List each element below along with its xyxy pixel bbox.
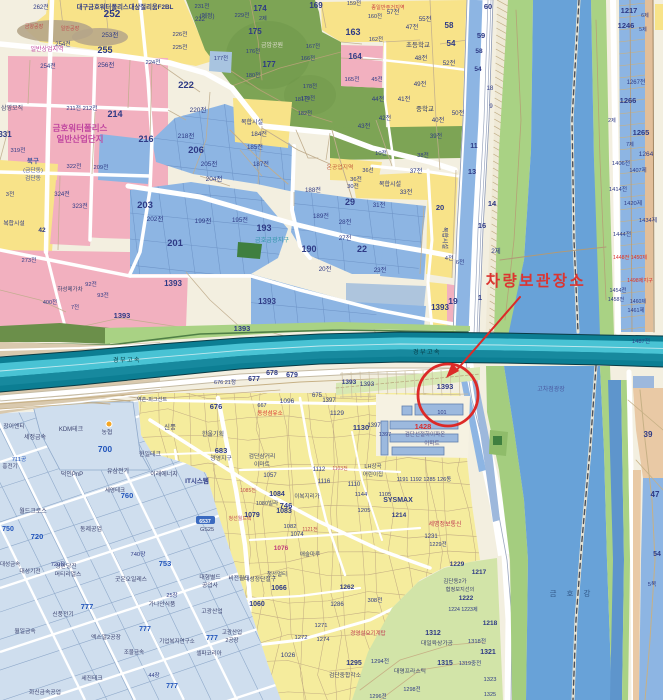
- svg-text:대일육상가공: 대일육상가공: [421, 639, 454, 647]
- svg-text:193: 193: [256, 223, 271, 233]
- svg-text:동성섬유소: 동성섬유소: [257, 409, 282, 417]
- svg-text:1315: 1315: [437, 660, 453, 667]
- svg-text:1461제: 1461제: [628, 306, 645, 314]
- svg-text:54: 54: [474, 66, 482, 73]
- svg-text:27전: 27전: [339, 234, 352, 242]
- svg-text:검단삼거리: 검단삼거리: [249, 452, 276, 460]
- svg-text:189전: 189전: [313, 212, 329, 220]
- svg-text:경부고속: 경부고속: [113, 356, 141, 364]
- svg-text:1060: 1060: [249, 601, 265, 608]
- svg-text:683: 683: [215, 446, 228, 455]
- svg-text:일반상업지역: 일반상업지역: [30, 45, 63, 53]
- svg-text:45전: 45전: [371, 75, 382, 83]
- svg-text:214: 214: [107, 109, 122, 119]
- svg-text:금암공원: 금암공원: [261, 41, 283, 49]
- svg-text:322전: 322전: [66, 162, 81, 170]
- svg-text:220전: 220전: [190, 105, 207, 114]
- svg-text:777: 777: [206, 635, 218, 642]
- svg-text:177: 177: [262, 60, 276, 69]
- svg-text:1498제지구: 1498제지구: [627, 276, 653, 284]
- svg-text:GS25: GS25: [200, 527, 214, 533]
- svg-text:기업복지연구소: 기업복지연구소: [159, 637, 194, 645]
- svg-text:1076: 1076: [274, 545, 289, 552]
- svg-text:1296전: 1296전: [369, 692, 386, 700]
- svg-text:아파트: 아파트: [424, 439, 439, 447]
- svg-text:1274: 1274: [317, 637, 331, 643]
- svg-text:광영지구: 광영지구: [210, 454, 232, 462]
- svg-text:164: 164: [348, 52, 362, 61]
- svg-text:1407제: 1407제: [629, 166, 646, 174]
- svg-text:28전: 28전: [339, 218, 352, 226]
- svg-text:42전: 42전: [379, 114, 391, 122]
- svg-text:206: 206: [188, 145, 204, 156]
- svg-text:4전: 4전: [445, 254, 454, 262]
- svg-text:48전: 48전: [415, 54, 428, 62]
- svg-text:일반산업단지: 일반산업단지: [57, 134, 104, 144]
- svg-text:1084: 1084: [269, 491, 285, 498]
- svg-text:1406전: 1406전: [612, 159, 630, 167]
- svg-text:1085전: 1085전: [240, 487, 256, 494]
- svg-text:60: 60: [484, 2, 492, 11]
- svg-text:700: 700: [98, 444, 112, 454]
- svg-text:1214: 1214: [392, 512, 407, 519]
- svg-text:667: 667: [257, 403, 266, 409]
- svg-text:1057: 1057: [263, 473, 277, 479]
- svg-text:5목: 5목: [648, 581, 657, 588]
- svg-text:2제: 2제: [608, 116, 616, 124]
- svg-text:31전: 31전: [373, 201, 386, 209]
- svg-text:777: 777: [139, 626, 151, 633]
- svg-text:대구금호워터폴리스대상절리움F2BL: 대구금호워터폴리스대상절리움F2BL: [77, 2, 174, 11]
- svg-text:1414전: 1414전: [609, 185, 627, 193]
- svg-text:1448전 1450제: 1448전 1450제: [613, 253, 647, 261]
- svg-text:이래에너지: 이래에너지: [150, 470, 178, 478]
- svg-text:금 호 강: 금 호 강: [550, 588, 595, 598]
- svg-text:202전: 202전: [147, 214, 164, 223]
- svg-text:323전: 323전: [72, 202, 88, 210]
- svg-text:장이엔티: 장이엔티: [3, 422, 24, 430]
- svg-text:1103전: 1103전: [332, 465, 348, 472]
- svg-text:1454전: 1454전: [610, 286, 627, 294]
- svg-text:1393: 1393: [114, 311, 131, 320]
- svg-text:어린이집: 어린이집: [363, 470, 383, 478]
- svg-text:1080빌라: 1080빌라: [256, 499, 278, 507]
- svg-text:14: 14: [488, 199, 497, 208]
- svg-text:1267전: 1267전: [627, 78, 646, 86]
- svg-text:93전: 93전: [97, 291, 109, 299]
- svg-text:복합시설: 복합시설: [379, 180, 401, 188]
- svg-text:1217: 1217: [621, 6, 638, 15]
- svg-text:금호금광지구: 금호금광지구: [255, 236, 289, 244]
- svg-text:1264: 1264: [639, 151, 654, 158]
- svg-text:39: 39: [644, 430, 653, 439]
- svg-text:167전: 167전: [306, 42, 320, 50]
- svg-text:고차점광장: 고차점광장: [537, 385, 565, 393]
- svg-text:308전: 308전: [367, 596, 382, 604]
- svg-text:178전: 178전: [303, 82, 317, 90]
- svg-text:LH상곡: LH상곡: [364, 462, 381, 470]
- svg-text:1191 1192 1285 126동: 1191 1192 1285 126동: [397, 476, 452, 483]
- svg-text:1026: 1026: [281, 652, 296, 659]
- svg-text:1246: 1246: [618, 21, 635, 30]
- svg-text:공업사: 공업사: [202, 581, 219, 589]
- svg-text:1144: 1144: [355, 492, 368, 498]
- svg-text:1294전: 1294전: [371, 657, 389, 665]
- svg-text:1112: 1112: [313, 467, 326, 473]
- svg-text:1121전: 1121전: [302, 526, 318, 533]
- svg-text:165전: 165전: [344, 75, 359, 83]
- svg-text:애술마루: 애술마루: [300, 550, 320, 558]
- svg-text:22: 22: [357, 244, 367, 254]
- svg-text:23전: 23전: [374, 266, 387, 274]
- svg-text:경영설요기계탑: 경영설요기계탑: [350, 629, 385, 637]
- svg-text:218전: 218전: [178, 131, 195, 140]
- svg-text:253전: 253전: [102, 30, 119, 39]
- svg-text:5제: 5제: [639, 25, 647, 33]
- svg-text:254전: 254전: [40, 62, 56, 70]
- svg-text:셀파코리아: 셀파코리아: [196, 649, 221, 657]
- svg-text:1229: 1229: [450, 561, 465, 568]
- svg-text:176전: 176전: [246, 47, 260, 55]
- svg-text:1082: 1082: [284, 524, 297, 530]
- svg-text:160전: 160전: [368, 12, 382, 20]
- svg-text:47: 47: [651, 490, 660, 499]
- svg-text:1323: 1323: [484, 677, 497, 683]
- svg-text:중학교: 중학교: [416, 104, 434, 113]
- svg-text:7제: 7제: [626, 140, 634, 148]
- svg-text:검단중합각소: 검단중합각소: [329, 671, 362, 679]
- svg-text:44장: 44장: [148, 672, 159, 679]
- svg-text:북구: 북구: [27, 156, 39, 165]
- svg-text:163: 163: [345, 27, 360, 37]
- svg-text:고광산업: 고광산업: [201, 607, 222, 615]
- svg-text:753: 753: [159, 559, 172, 568]
- svg-text:세명정보통신: 세명정보통신: [428, 520, 461, 528]
- svg-text:203: 203: [137, 200, 153, 211]
- svg-text:삼영모직: 삼영모직: [1, 104, 23, 112]
- svg-text:720장: 720장: [51, 561, 65, 568]
- svg-text:세진테크: 세진테크: [81, 674, 103, 682]
- svg-text:679: 679: [286, 372, 298, 379]
- svg-text:1318전: 1318전: [468, 637, 486, 645]
- svg-text:1312: 1312: [425, 630, 441, 637]
- svg-text:211전 212전: 211전 212전: [66, 104, 97, 112]
- svg-text:42: 42: [38, 227, 46, 234]
- svg-text:166전: 166전: [301, 54, 315, 62]
- svg-text:머티리얼스: 머티리얼스: [55, 570, 82, 578]
- svg-text:월일금속: 월일금속: [14, 627, 36, 635]
- svg-text:185전: 185전: [247, 143, 263, 151]
- svg-text:김단동2가: 김단동2가: [443, 577, 466, 585]
- svg-text:20: 20: [436, 203, 444, 212]
- svg-text:188전: 188전: [305, 186, 321, 194]
- svg-text:182전: 182전: [298, 109, 312, 117]
- svg-text:262전: 262전: [33, 3, 49, 11]
- svg-text:1393: 1393: [258, 297, 276, 306]
- svg-text:184전: 184전: [251, 130, 267, 138]
- svg-text:162전: 162전: [369, 35, 383, 43]
- svg-text:1229전: 1229전: [429, 540, 446, 548]
- svg-text:54: 54: [653, 551, 661, 558]
- svg-text:677: 677: [248, 376, 260, 383]
- svg-text:1083: 1083: [276, 508, 292, 515]
- svg-text:1079: 1079: [244, 512, 260, 519]
- svg-text:10전: 10전: [375, 149, 387, 157]
- svg-text:6제: 6제: [641, 11, 649, 19]
- svg-text:19: 19: [448, 296, 458, 306]
- svg-text:204전: 204전: [206, 174, 223, 183]
- svg-text:18: 18: [487, 86, 494, 92]
- svg-text:1428: 1428: [415, 422, 432, 431]
- svg-text:일반공장: 일반공장: [61, 25, 80, 32]
- svg-text:6537: 6537: [199, 519, 211, 525]
- svg-text:740장: 740장: [130, 551, 146, 558]
- svg-text:1265: 1265: [633, 128, 650, 137]
- svg-text:한울기획: 한울기획: [202, 430, 224, 438]
- svg-text:조물금속: 조물금속: [124, 648, 144, 656]
- svg-text:58: 58: [445, 21, 454, 30]
- svg-text:현일테크: 현일테크: [139, 450, 162, 458]
- svg-text:신풍: 신풍: [164, 422, 176, 431]
- svg-text:54: 54: [447, 39, 456, 48]
- svg-text:1397: 1397: [379, 432, 391, 438]
- svg-text:차량보관장소: 차량보관장소: [486, 271, 587, 290]
- svg-text:역촌-피그선트: 역촌-피그선트: [137, 395, 168, 403]
- svg-text:1217: 1217: [472, 569, 487, 576]
- svg-text:복합시설: 복합시설: [241, 118, 263, 126]
- svg-text:720: 720: [31, 532, 44, 541]
- svg-text:216: 216: [138, 134, 153, 144]
- svg-text:굿은오일레스: 굿은오일레스: [115, 575, 148, 583]
- svg-text:복합시설: 복합시설: [441, 227, 449, 249]
- svg-text:3전: 3전: [6, 190, 15, 198]
- svg-text:1397: 1397: [322, 398, 336, 404]
- svg-text:1262: 1262: [340, 584, 355, 591]
- svg-text:11: 11: [470, 143, 478, 150]
- svg-text:1393: 1393: [437, 382, 454, 391]
- svg-text:1319중전: 1319중전: [459, 659, 481, 667]
- svg-text:319전: 319전: [10, 146, 25, 154]
- svg-text:경부고속: 경부고속: [413, 348, 441, 356]
- svg-text:252: 252: [104, 9, 121, 20]
- svg-text:777: 777: [166, 683, 178, 690]
- svg-text:SYSMAX: SYSMAX: [383, 497, 413, 504]
- svg-text:2제: 2제: [491, 247, 501, 255]
- svg-text:55전: 55전: [419, 15, 432, 23]
- svg-text:세정금속: 세정금속: [24, 433, 47, 441]
- svg-text:225전: 225전: [172, 43, 187, 51]
- svg-text:대명프라스틱: 대명프라스틱: [394, 667, 426, 675]
- svg-text:209전: 209전: [93, 163, 108, 171]
- svg-text:1321: 1321: [480, 649, 496, 656]
- svg-text:1266: 1266: [620, 96, 637, 105]
- svg-text:이마트: 이마트: [254, 460, 271, 468]
- svg-text:2제: 2제: [259, 14, 267, 22]
- svg-text:39전: 39전: [430, 132, 442, 140]
- svg-text:29: 29: [345, 197, 355, 207]
- svg-text:1224 1223제: 1224 1223제: [448, 605, 478, 613]
- svg-text:동제공업: 동제공업: [80, 525, 102, 533]
- svg-text:40전: 40전: [432, 116, 445, 124]
- svg-text:1271: 1271: [315, 623, 328, 629]
- svg-text:199전: 199전: [195, 216, 212, 225]
- svg-text:256전: 256전: [98, 60, 115, 69]
- svg-text:273전: 273전: [21, 256, 36, 264]
- svg-text:화신금속공업: 화신금속공업: [29, 688, 61, 696]
- svg-text:231전: 231전: [194, 2, 209, 10]
- svg-text:30전: 30전: [347, 182, 359, 190]
- svg-text:1458전: 1458전: [608, 296, 625, 303]
- svg-text:1110: 1110: [348, 482, 361, 488]
- svg-text:777: 777: [81, 602, 94, 611]
- svg-text:201: 201: [167, 238, 184, 249]
- svg-text:1487전: 1487전: [632, 337, 650, 345]
- svg-text:36전: 36전: [350, 175, 362, 183]
- svg-text:1096: 1096: [280, 398, 295, 405]
- svg-text:하성메가차: 하성메가차: [57, 285, 82, 293]
- svg-text:180전: 180전: [246, 71, 260, 79]
- svg-text:59: 59: [477, 31, 485, 40]
- svg-text:52전: 52전: [443, 59, 456, 67]
- svg-text:678: 678: [266, 370, 278, 377]
- svg-text:750: 750: [2, 526, 14, 533]
- svg-text:1231: 1231: [424, 534, 438, 540]
- svg-text:174: 174: [253, 4, 267, 13]
- svg-text:1420제: 1420제: [624, 199, 642, 207]
- svg-text:유삼전기: 유삼전기: [107, 467, 129, 475]
- svg-text:2공장: 2공장: [225, 637, 238, 644]
- svg-text:온공업지역: 온공업지역: [327, 163, 354, 171]
- svg-text:1397: 1397: [367, 423, 381, 429]
- svg-text:KDM테크: KDM테크: [59, 425, 84, 433]
- svg-text:1116: 1116: [318, 479, 331, 485]
- svg-text:7전: 7전: [71, 303, 79, 311]
- svg-text:205전: 205전: [201, 159, 218, 168]
- svg-text:224전: 224전: [145, 58, 160, 66]
- svg-text:16: 16: [478, 221, 486, 230]
- svg-text:25장: 25장: [166, 592, 177, 599]
- svg-text:신풍전기: 신풍전기: [52, 610, 73, 618]
- svg-text:1434제: 1434제: [639, 216, 657, 224]
- svg-text:58: 58: [475, 48, 483, 55]
- svg-text:44전: 44전: [372, 95, 385, 103]
- svg-text:187전: 187전: [253, 160, 269, 168]
- svg-text:676: 676: [210, 402, 223, 411]
- svg-text:초등학교: 초등학교: [406, 40, 430, 49]
- svg-text:1393: 1393: [360, 381, 375, 388]
- svg-text:20전: 20전: [319, 265, 332, 273]
- svg-text:이복지리가: 이복지리가: [294, 492, 319, 500]
- svg-text:6전: 6전: [456, 258, 465, 266]
- svg-text:169: 169: [309, 1, 323, 10]
- svg-text:13: 13: [468, 167, 476, 176]
- svg-text:덕인PnP: 덕인PnP: [61, 471, 83, 478]
- svg-text:대성기전: 대성기전: [19, 567, 40, 575]
- svg-text:1074: 1074: [290, 532, 304, 538]
- svg-text:190: 190: [301, 244, 316, 254]
- svg-text:금양공장: 금양공장: [25, 23, 44, 30]
- svg-text:1222: 1222: [459, 595, 474, 602]
- svg-text:36선: 36선: [362, 166, 373, 174]
- svg-text:1: 1: [478, 293, 482, 302]
- svg-text:175: 175: [248, 27, 262, 36]
- svg-text:33전: 33전: [400, 188, 413, 196]
- svg-text:400전: 400전: [43, 298, 57, 306]
- svg-text:농협: 농협: [102, 428, 113, 436]
- svg-text:엑스알2공장: 엑스알2공장: [91, 633, 122, 641]
- svg-text:비전월드: 비전월드: [228, 574, 250, 582]
- svg-text:760: 760: [121, 491, 134, 500]
- svg-text:1393: 1393: [164, 279, 182, 288]
- svg-text:1393: 1393: [342, 379, 357, 386]
- svg-text:1272: 1272: [295, 635, 308, 641]
- svg-text:38전: 38전: [417, 151, 429, 159]
- svg-text:1286: 1286: [330, 602, 344, 608]
- svg-text:195전: 195전: [232, 216, 248, 224]
- svg-text:대형별드: 대형별드: [199, 573, 221, 581]
- svg-text:675: 675: [312, 393, 323, 399]
- svg-text:가나안식품: 가나안식품: [149, 600, 176, 608]
- svg-text:1066: 1066: [271, 585, 287, 592]
- svg-text:181전: 181전: [295, 95, 309, 103]
- svg-text:IT시스템: IT시스템: [185, 476, 209, 485]
- svg-text:1325: 1325: [484, 692, 496, 698]
- svg-text:226전: 226전: [172, 30, 187, 38]
- svg-text:1444전: 1444전: [613, 230, 631, 238]
- svg-text:1295: 1295: [346, 660, 362, 667]
- svg-text:43전: 43전: [358, 122, 371, 130]
- svg-text:47전: 47전: [406, 23, 419, 31]
- svg-text:255: 255: [97, 45, 112, 55]
- svg-text:159전: 159전: [347, 0, 361, 7]
- svg-text:1393: 1393: [234, 324, 251, 333]
- svg-text:92전: 92전: [85, 280, 97, 288]
- svg-text:49전: 49전: [414, 80, 427, 88]
- svg-text:검단동: 검단동: [25, 174, 42, 182]
- svg-text:대성금속: 대성금속: [0, 560, 20, 568]
- svg-text:흥전기: 흥전기: [2, 462, 17, 470]
- svg-text:50전: 50전: [452, 109, 465, 117]
- svg-text:1460제: 1460제: [630, 297, 647, 305]
- svg-text:1205: 1205: [358, 508, 371, 514]
- svg-text:229전: 229전: [234, 11, 249, 19]
- svg-text:협정보지선의: 협정보지선의: [446, 585, 475, 593]
- svg-text:1129: 1129: [330, 410, 344, 417]
- svg-text:1218: 1218: [483, 620, 498, 627]
- svg-text:종일반주거지역: 종일반주거지역: [371, 3, 405, 11]
- svg-text:222: 222: [195, 17, 206, 23]
- svg-text:검단선절하이파온: 검단선절하이파온: [405, 430, 445, 438]
- svg-text:101: 101: [437, 410, 446, 416]
- svg-text:(금단동): (금단동): [23, 166, 43, 174]
- svg-text:37전: 37전: [410, 167, 423, 175]
- svg-text:1298전: 1298전: [403, 685, 420, 693]
- svg-text:청선멀티: 청선멀티: [267, 570, 287, 578]
- svg-text:금호워터폴리스: 금호워터폴리스: [53, 123, 108, 133]
- svg-text:41전: 41전: [398, 95, 411, 103]
- svg-text:복합시설: 복합시설: [3, 219, 24, 227]
- svg-text:676 21정: 676 21정: [214, 379, 236, 386]
- svg-text:1393: 1393: [431, 303, 449, 312]
- svg-text:324전: 324전: [54, 190, 70, 198]
- svg-text:월드크로스: 월드크로스: [19, 507, 47, 515]
- svg-text:222: 222: [178, 80, 194, 91]
- svg-text:331: 331: [0, 130, 12, 139]
- svg-text:711공: 711공: [12, 456, 27, 463]
- svg-text:177전: 177전: [214, 54, 228, 62]
- svg-text:고광산업: 고광산업: [222, 628, 242, 636]
